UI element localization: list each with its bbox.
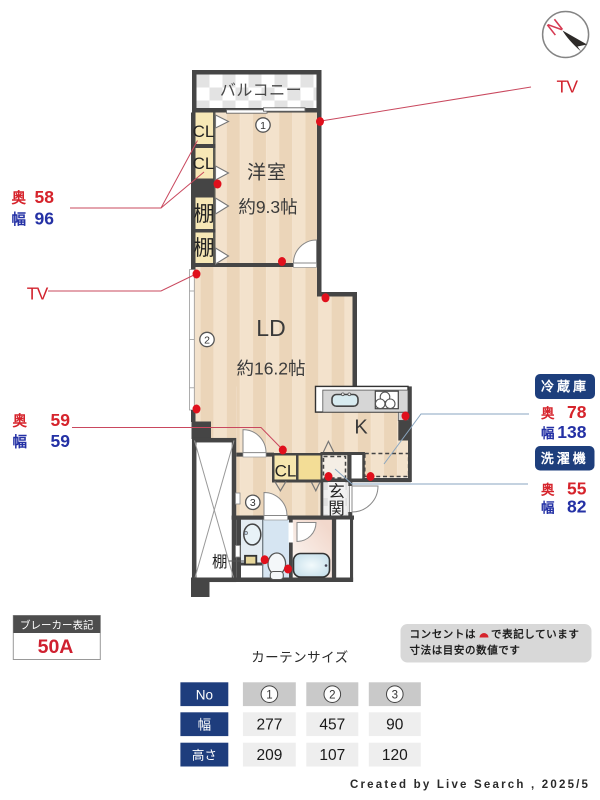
svg-text:関: 関	[328, 500, 345, 518]
svg-text:59: 59	[51, 410, 71, 430]
svg-text:幅: 幅	[541, 425, 555, 441]
svg-text:50A: 50A	[38, 636, 74, 658]
svg-text:CL: CL	[275, 462, 297, 481]
svg-text:3: 3	[392, 690, 398, 702]
svg-text:洋室: 洋室	[247, 162, 287, 184]
svg-text:3: 3	[250, 497, 256, 509]
svg-text:90: 90	[386, 717, 404, 734]
svg-text:TV: TV	[557, 77, 579, 97]
svg-text:LD: LD	[256, 315, 285, 341]
svg-text:カーテンサイズ: カーテンサイズ	[251, 650, 349, 665]
svg-text:277: 277	[256, 717, 282, 734]
svg-text:120: 120	[382, 747, 408, 764]
svg-text:1: 1	[260, 120, 266, 132]
svg-text:棚: 棚	[212, 553, 228, 571]
svg-text:CL: CL	[193, 122, 215, 141]
svg-text:コンセントは: コンセントは	[410, 629, 477, 641]
svg-text:奥: 奥	[541, 482, 555, 498]
svg-text:幅: 幅	[12, 211, 27, 229]
svg-text:58: 58	[35, 187, 55, 207]
svg-text:棚: 棚	[194, 237, 215, 260]
svg-text:奥: 奥	[13, 412, 28, 430]
svg-text:玄: 玄	[328, 482, 345, 501]
svg-text:1: 1	[266, 690, 272, 702]
svg-text:78: 78	[567, 402, 587, 422]
svg-text:寸法は目安の数値です: 寸法は目安の数値です	[410, 644, 521, 657]
svg-text:ブレーカー表記: ブレーカー表記	[20, 619, 94, 632]
svg-text:Created by Live Search , 2025/: Created by Live Search , 2025/5	[350, 779, 590, 791]
svg-text:96: 96	[35, 209, 55, 229]
svg-text:奥: 奥	[541, 405, 555, 421]
svg-text:幅: 幅	[541, 500, 555, 516]
svg-text:457: 457	[319, 717, 345, 734]
svg-text:55: 55	[567, 479, 587, 499]
svg-text:洗濯機: 洗濯機	[541, 451, 589, 466]
svg-text:No: No	[196, 687, 213, 702]
svg-text:で表記しています: で表記しています	[491, 628, 580, 641]
svg-text:バルコニー: バルコニー	[220, 83, 302, 100]
svg-text:2: 2	[329, 690, 335, 702]
svg-text:82: 82	[567, 497, 587, 517]
svg-text:幅: 幅	[198, 717, 212, 732]
svg-text:棚: 棚	[194, 203, 215, 226]
svg-text:209: 209	[256, 747, 282, 764]
svg-text:CL: CL	[193, 154, 215, 173]
svg-text:107: 107	[319, 747, 345, 764]
svg-text:TV: TV	[27, 284, 49, 304]
svg-text:高さ: 高さ	[192, 748, 217, 763]
svg-text:冷蔵庫: 冷蔵庫	[541, 379, 589, 394]
svg-text:幅: 幅	[13, 433, 28, 451]
svg-text:約16.2帖: 約16.2帖	[236, 359, 305, 379]
svg-text:K: K	[354, 417, 368, 439]
svg-text:奥: 奥	[12, 189, 27, 207]
svg-text:138: 138	[557, 422, 586, 442]
svg-text:59: 59	[51, 431, 71, 451]
svg-text:約9.3帖: 約9.3帖	[238, 197, 297, 217]
svg-text:2: 2	[204, 334, 210, 346]
